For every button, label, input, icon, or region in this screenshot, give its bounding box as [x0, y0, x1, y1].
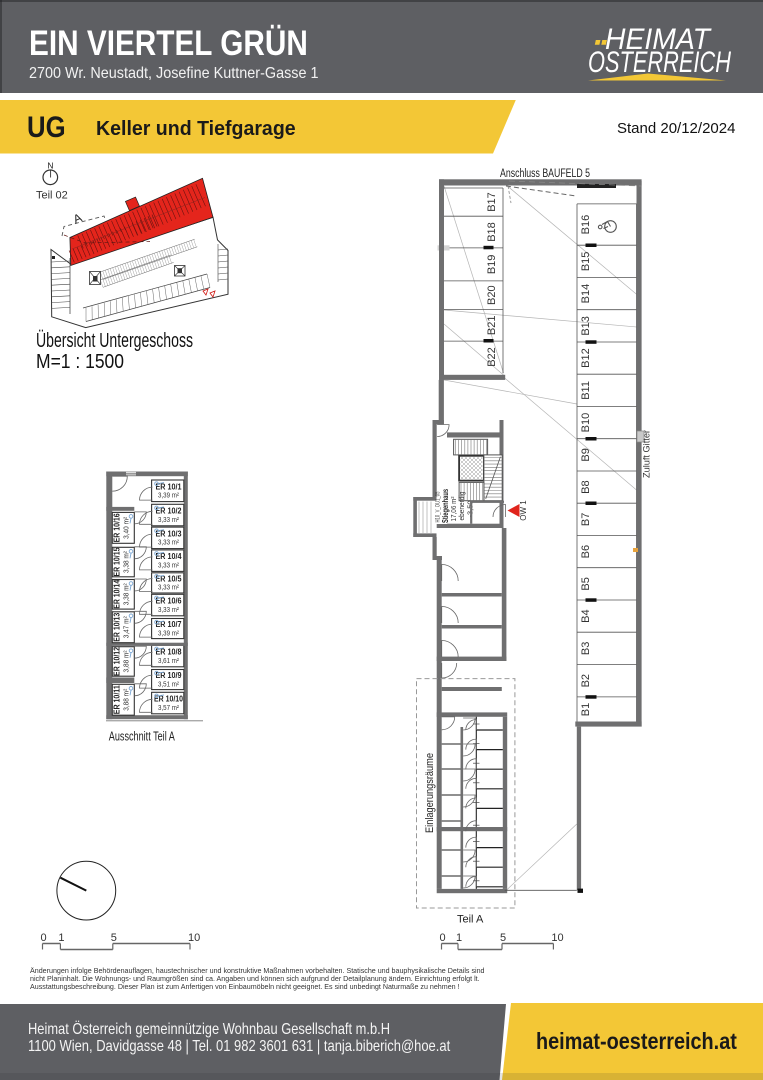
svg-text:B9: B9: [580, 448, 592, 461]
svg-text:5: 5: [500, 932, 506, 944]
svg-text:1: 1: [58, 932, 64, 944]
svg-text:ER 10/13: ER 10/13: [113, 612, 122, 641]
svg-text:Teil A: Teil A: [457, 914, 484, 926]
svg-text:B16: B16: [580, 215, 592, 235]
svg-text:B6: B6: [580, 545, 592, 558]
svg-text:5: 5: [111, 932, 117, 944]
svg-text:3,33 m²: 3,33 m²: [158, 560, 179, 569]
svg-text:17,06 m²: 17,06 m²: [451, 496, 458, 522]
svg-text:3,88 m²: 3,88 m²: [122, 650, 131, 672]
svg-text:OW 1: OW 1: [519, 500, 528, 521]
svg-text:3,38 m²: 3,38 m²: [122, 551, 131, 573]
svg-text:B8: B8: [580, 480, 592, 493]
svg-text:B17: B17: [486, 192, 498, 212]
svg-text:3,88 m²: 3,88 m²: [122, 688, 131, 710]
svg-text:3,51 m²: 3,51 m²: [158, 679, 179, 688]
svg-text:B21: B21: [486, 316, 498, 336]
svg-text:3,57 m²: 3,57 m²: [158, 703, 179, 712]
svg-text:10: 10: [551, 932, 563, 944]
svg-text:ER 10/15: ER 10/15: [113, 547, 122, 576]
svg-text:B11: B11: [580, 381, 592, 400]
svg-text:N: N: [47, 160, 53, 170]
svg-text:Stiegenhaus: Stiegenhaus: [440, 489, 450, 523]
svg-text:3,33 m²: 3,33 m²: [158, 538, 179, 547]
svg-text:3,33 m²: 3,33 m²: [158, 583, 179, 592]
svg-text:3,33 m²: 3,33 m²: [158, 515, 179, 524]
svg-text:ER 10/16: ER 10/16: [113, 513, 122, 542]
svg-text:Anschluss BAUFELD 5: Anschluss BAUFELD 5: [500, 168, 590, 180]
svg-text:B4: B4: [580, 609, 592, 622]
svg-text:M=1 : 1500: M=1 : 1500: [36, 351, 124, 373]
svg-text:3,39 m²: 3,39 m²: [158, 628, 179, 637]
svg-text:Zuluft Gitter: Zuluft Gitter: [642, 430, 652, 478]
svg-text:10: 10: [188, 932, 200, 944]
svg-text:B5: B5: [580, 577, 592, 590]
svg-text:3,40 m²: 3,40 m²: [122, 516, 131, 538]
svg-text:3,39 m²: 3,39 m²: [158, 491, 179, 500]
svg-text:ER 10/11: ER 10/11: [113, 685, 122, 714]
svg-text:3,33 m²: 3,33 m²: [158, 605, 179, 614]
svg-text:B22: B22: [486, 347, 498, 367]
svg-text:3,47 m²: 3,47 m²: [122, 616, 131, 638]
svg-text:ER 10/12: ER 10/12: [113, 646, 122, 675]
svg-text:B14: B14: [580, 284, 592, 304]
svg-text:B19: B19: [486, 255, 498, 275]
svg-text:B13: B13: [580, 316, 592, 336]
svg-text:0: 0: [41, 932, 47, 944]
svg-text:Einlagerungsräume: Einlagerungsräume: [424, 753, 436, 833]
svg-text:B15: B15: [580, 252, 592, 272]
svg-text:Ausschnitt Teil A: Ausschnitt Teil A: [109, 729, 175, 744]
svg-text:ER 10/14: ER 10/14: [113, 579, 122, 608]
svg-text:B3: B3: [580, 642, 592, 655]
svg-text:1: 1: [456, 932, 462, 944]
svg-text:B1: B1: [580, 703, 592, 716]
svg-text:3,38 m²: 3,38 m²: [122, 583, 131, 605]
svg-text:3,61 m²: 3,61 m²: [158, 656, 179, 665]
svg-text:A: A: [71, 210, 84, 226]
svg-text:B7: B7: [580, 513, 592, 526]
svg-text:B18: B18: [486, 222, 498, 242]
svg-text:Übersicht Untergeschoss: Übersicht Untergeschoss: [36, 330, 193, 352]
svg-text:Teil 02: Teil 02: [36, 189, 68, 201]
svg-text:B2: B2: [580, 674, 592, 687]
svg-text:0: 0: [440, 932, 446, 944]
svg-text:B12: B12: [580, 348, 592, 368]
svg-text:ebenerdig: ebenerdig: [459, 491, 466, 520]
svg-text:B10: B10: [580, 413, 592, 433]
svg-text:B20: B20: [486, 285, 498, 305]
